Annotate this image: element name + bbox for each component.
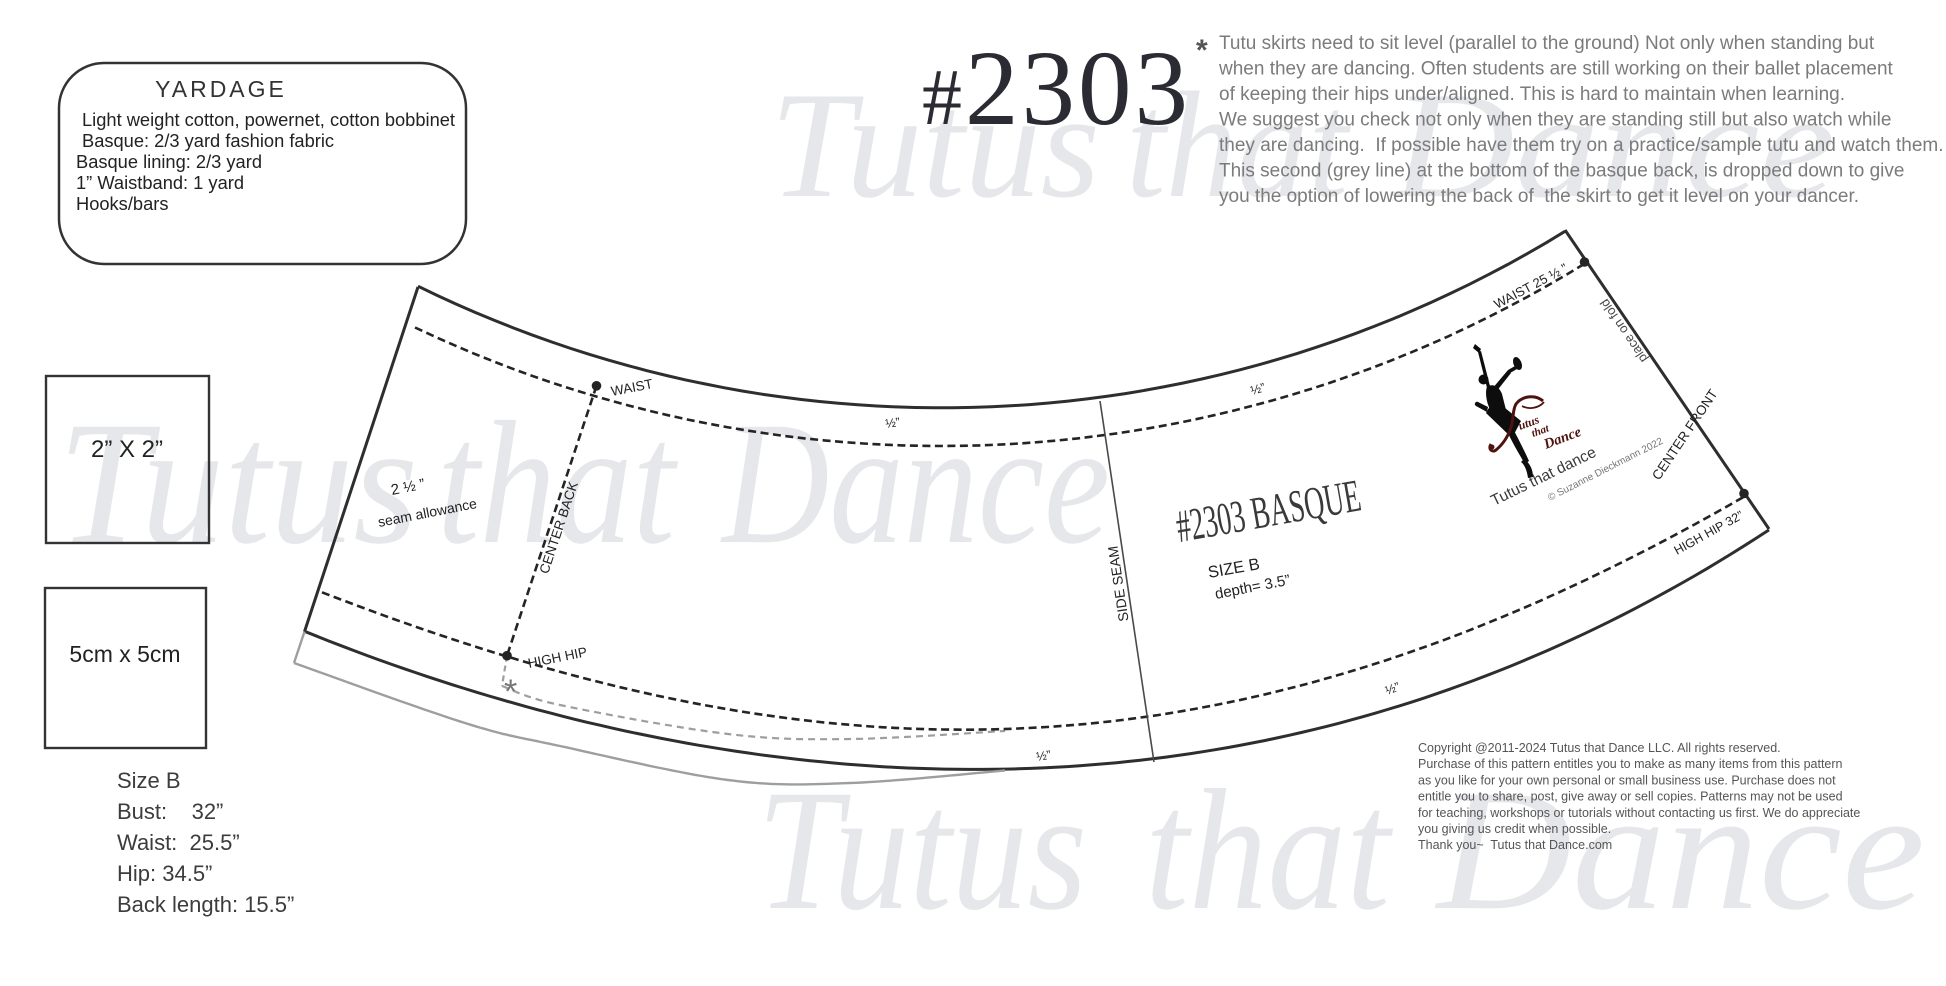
svg-text:Purchase of this pattern entit: Purchase of this pattern entitles you to…	[1418, 757, 1843, 771]
svg-text:of keeping their hips under/al: of keeping their hips under/aligned. Thi…	[1219, 84, 1845, 105]
svg-text:1” Waistband: 1 yard: 1” Waistband: 1 yard	[76, 172, 244, 193]
svg-text:#2303 BASQUE: #2303 BASQUE	[1172, 470, 1364, 553]
svg-text:½”: ½”	[1383, 680, 1402, 698]
svg-text:Basque: 2/3 yard fashion fabri: Basque: 2/3 yard fashion fabric	[82, 130, 334, 151]
svg-text:*: *	[1196, 34, 1208, 67]
svg-text:This second (grey line) at the: This second (grey line) at the bottom of…	[1219, 161, 1904, 182]
svg-text:½”: ½”	[1035, 748, 1052, 764]
svg-text:HIGH HIP: HIGH HIP	[527, 644, 589, 671]
svg-text:*: *	[504, 673, 517, 711]
svg-text:#2303: #2303	[922, 30, 1191, 148]
svg-text:Dance: Dance	[720, 386, 1110, 581]
svg-text:Hip: 34.5”: Hip: 34.5”	[117, 861, 212, 886]
svg-text:place on fold: place on fold	[1597, 296, 1651, 366]
svg-text:entitle you to share, post, gi: entitle you to share, post, give away or…	[1418, 790, 1843, 804]
svg-text:Tutus: Tutus	[58, 386, 418, 581]
svg-text:Waist: 25.5”: Waist: 25.5”	[117, 830, 240, 855]
svg-text:2” X 2”: 2” X 2”	[91, 436, 163, 463]
svg-text:YARDAGE: YARDAGE	[155, 76, 287, 102]
svg-text:Hooks/bars: Hooks/bars	[76, 193, 168, 214]
svg-text:Copyright @2011-2024 Tutus tha: Copyright @2011-2024 Tutus that Dance LL…	[1418, 741, 1781, 755]
svg-text:Back length: 15.5”: Back length: 15.5”	[117, 892, 294, 917]
svg-text:5cm x 5cm: 5cm x 5cm	[69, 641, 180, 667]
svg-text:Tutu skirts need to sit level: Tutu skirts need to sit level (parallel …	[1219, 33, 1875, 54]
svg-text:that: that	[1145, 755, 1394, 946]
svg-text:CENTER FRONT: CENTER FRONT	[1649, 387, 1721, 483]
svg-text:you giving us credit when poss: you giving us credit when possible.	[1418, 822, 1611, 836]
svg-text:Basque lining: 2/3 yard: Basque lining: 2/3 yard	[76, 151, 262, 172]
svg-text:Size B: Size B	[117, 768, 181, 793]
svg-text:We suggest you check not only: We suggest you check not only when they …	[1219, 110, 1891, 131]
svg-text:when they are dancing. Often s: when they are dancing. Often students ar…	[1218, 59, 1894, 80]
svg-text:Bust: 32”: Bust: 32”	[117, 799, 223, 824]
svg-text:½”: ½”	[884, 415, 900, 431]
svg-text:as you like for your own perso: as you like for your own personal or sma…	[1418, 773, 1836, 787]
svg-text:½”: ½”	[1249, 380, 1267, 397]
svg-text:you the option of lowering the: you the option of lowering the back of t…	[1219, 186, 1859, 207]
svg-text:Thank you~ Tutus that Dance.c: Thank you~ Tutus that Dance.com	[1418, 838, 1612, 852]
svg-text:for teaching, workshops or tut: for teaching, workshops or tutorials wit…	[1418, 806, 1860, 820]
svg-text:they are dancing. If possible: they are dancing. If possible have them …	[1219, 135, 1944, 156]
svg-text:Light weight cotton, powernet,: Light weight cotton, powernet, cotton bo…	[82, 109, 455, 130]
